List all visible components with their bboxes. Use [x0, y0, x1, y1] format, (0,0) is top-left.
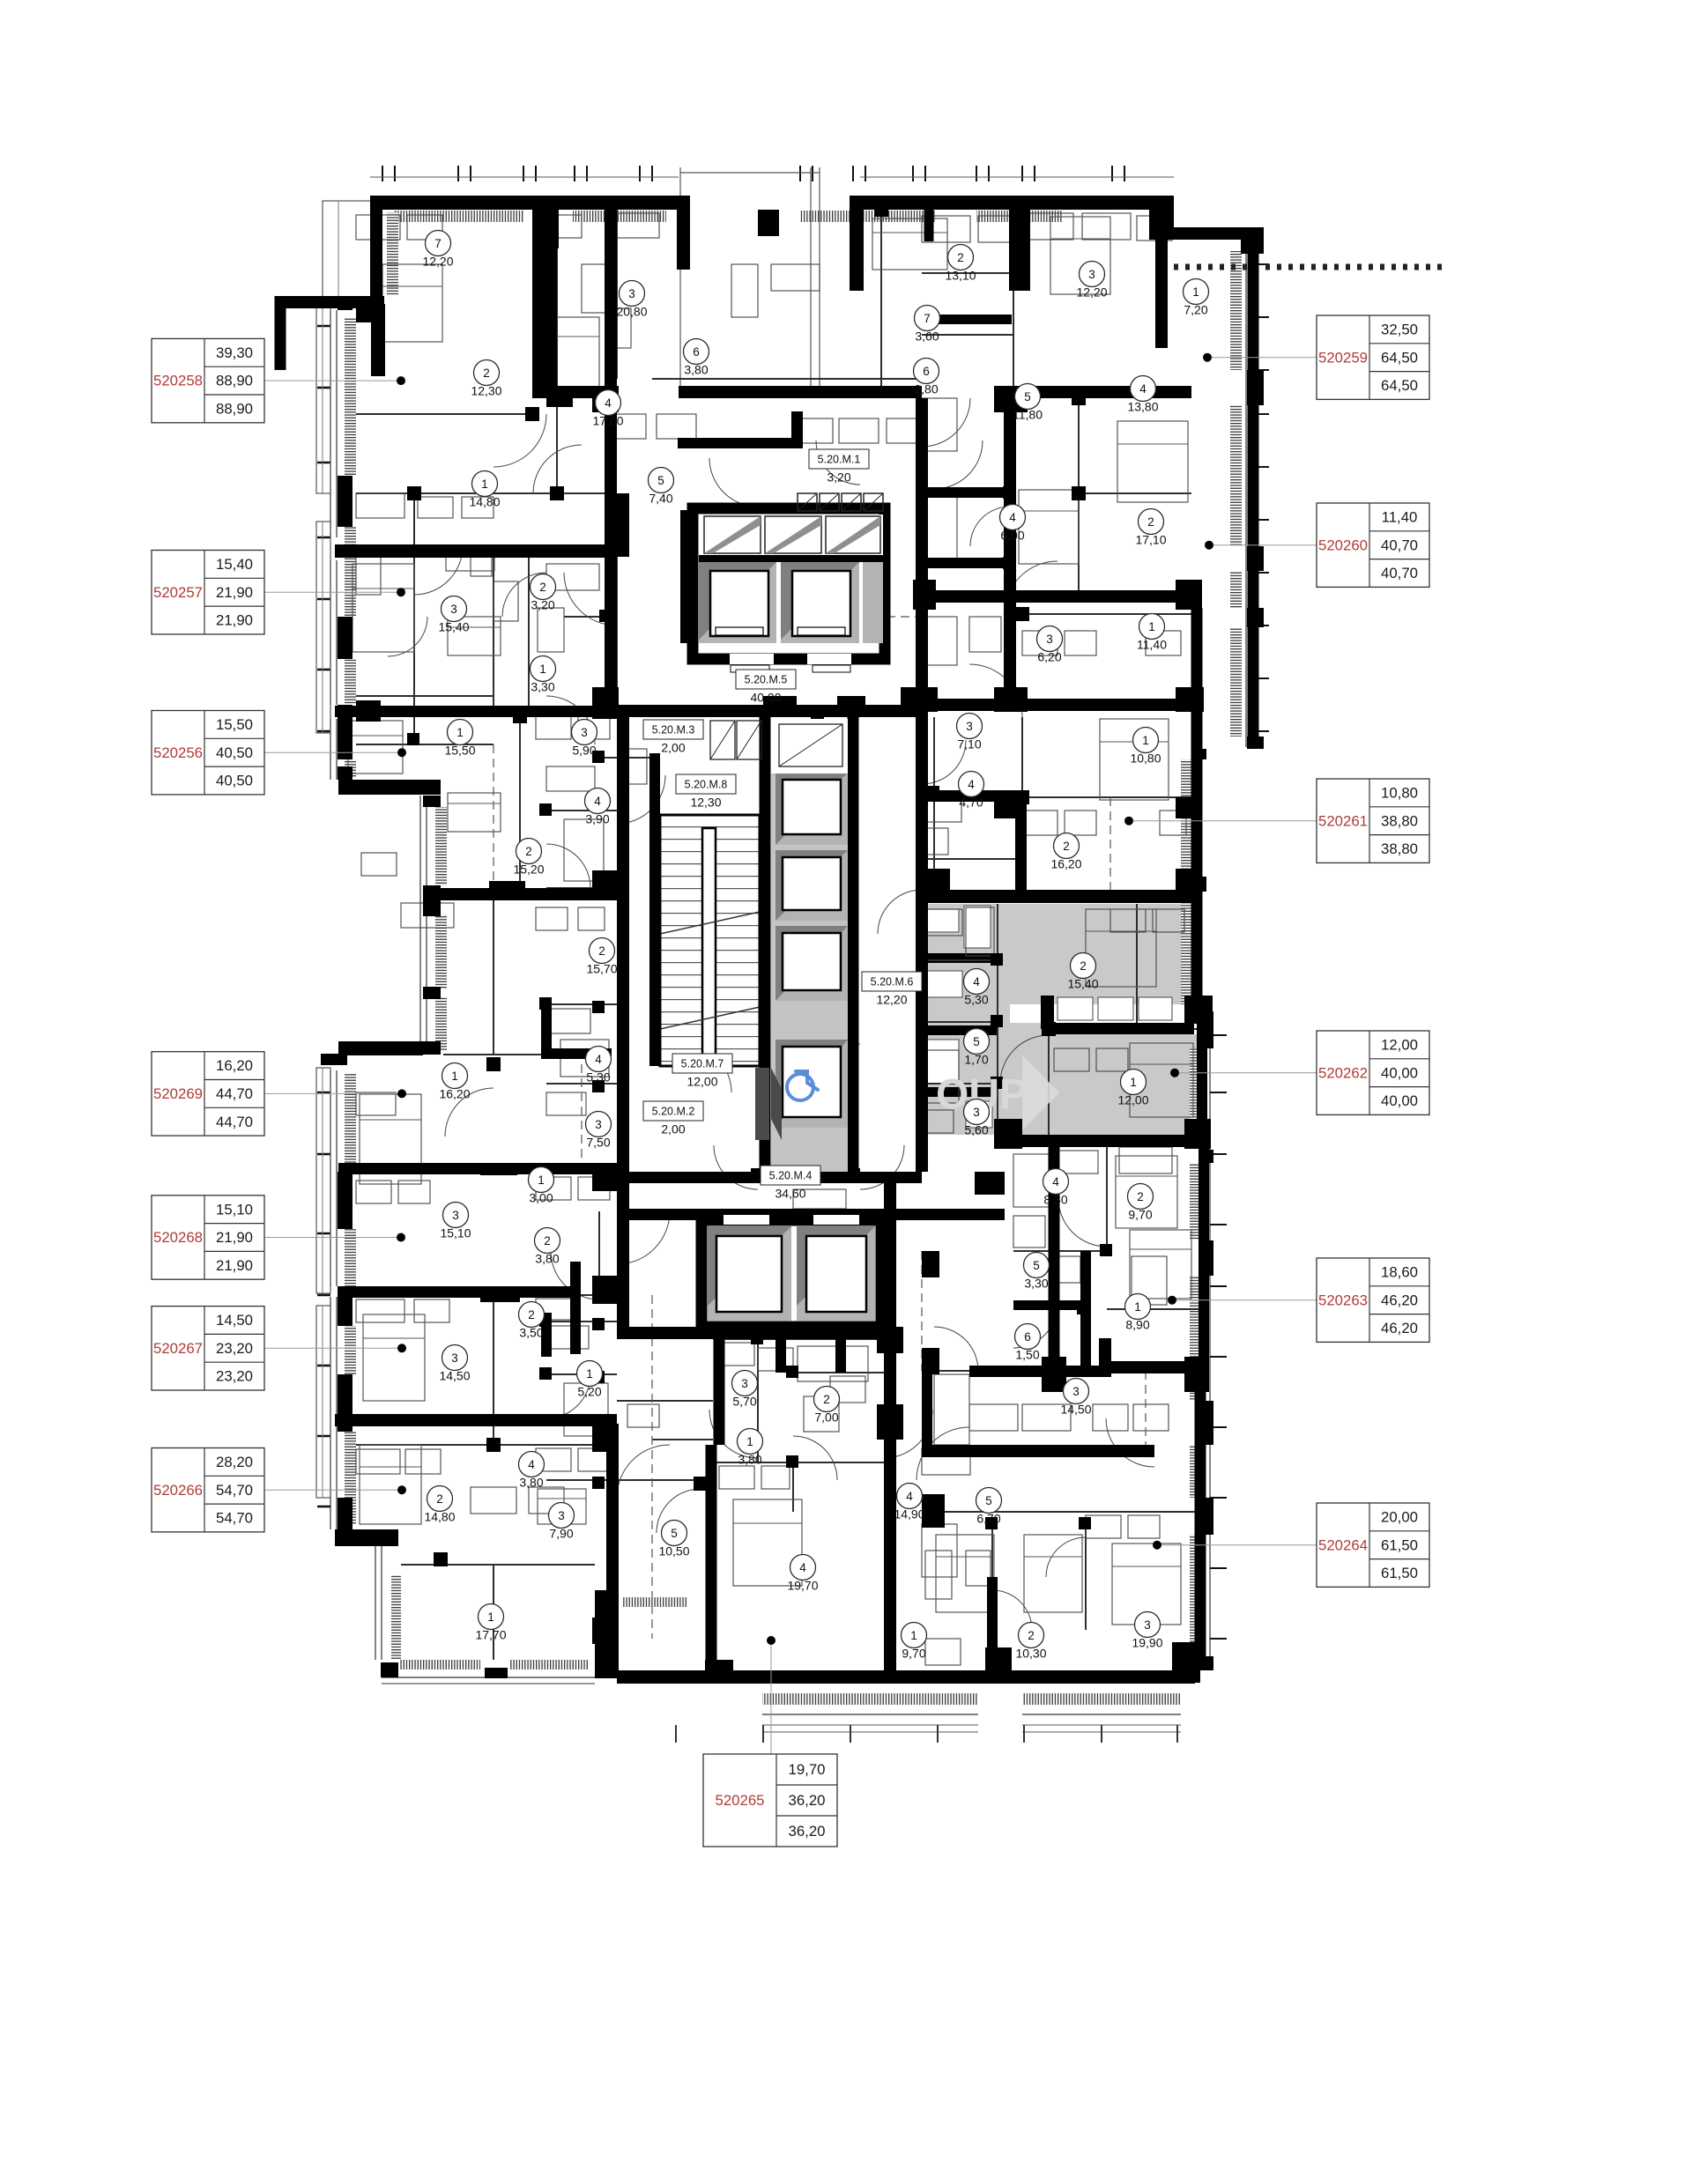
- svg-text:3: 3: [595, 1118, 602, 1131]
- svg-text:5.20.M.6: 5.20.M.6: [871, 976, 914, 988]
- svg-text:3: 3: [741, 1377, 748, 1390]
- svg-text:5.20.M.1: 5.20.M.1: [818, 454, 861, 466]
- svg-text:21,90: 21,90: [216, 1229, 253, 1246]
- svg-text:3,20: 3,20: [827, 470, 850, 485]
- svg-text:5: 5: [1024, 390, 1031, 403]
- svg-text:6,70: 6,70: [976, 1512, 1000, 1526]
- svg-text:38,80: 38,80: [1381, 840, 1418, 857]
- svg-text:7,00: 7,00: [814, 1410, 838, 1425]
- svg-text:1: 1: [456, 726, 464, 739]
- svg-text:11,40: 11,40: [1382, 509, 1418, 526]
- svg-text:3,30: 3,30: [531, 680, 554, 694]
- svg-text:7: 7: [434, 237, 442, 250]
- svg-text:7,10: 7,10: [957, 737, 981, 751]
- svg-text:3,80: 3,80: [519, 1476, 543, 1490]
- svg-text:5.20.M.8: 5.20.M.8: [685, 779, 728, 791]
- svg-text:3,20: 3,20: [531, 598, 554, 612]
- svg-text:14,50: 14,50: [439, 1369, 470, 1383]
- svg-text:8,90: 8,90: [1125, 1318, 1149, 1332]
- svg-text:4: 4: [968, 778, 975, 791]
- svg-text:13,10: 13,10: [945, 269, 976, 283]
- svg-text:3: 3: [1072, 1385, 1080, 1398]
- svg-text:5,30: 5,30: [964, 993, 988, 1007]
- svg-text:520267: 520267: [153, 1340, 203, 1357]
- svg-text:4: 4: [1009, 511, 1016, 524]
- svg-text:36,20: 36,20: [789, 1792, 826, 1809]
- svg-text:3,30: 3,30: [1024, 1277, 1048, 1291]
- svg-text:2,00: 2,00: [661, 1122, 685, 1136]
- svg-text:4: 4: [1052, 1175, 1059, 1188]
- svg-text:520261: 520261: [1318, 812, 1368, 829]
- svg-text:12,20: 12,20: [422, 255, 453, 269]
- svg-text:28,20: 28,20: [216, 1454, 253, 1470]
- svg-text:520257: 520257: [153, 584, 203, 601]
- svg-text:5.20.M.5: 5.20.M.5: [745, 674, 788, 686]
- svg-text:4: 4: [528, 1458, 535, 1471]
- svg-text:15,20: 15,20: [513, 862, 544, 877]
- svg-text:3,60: 3,60: [915, 329, 939, 344]
- svg-text:7,40: 7,40: [649, 492, 672, 506]
- svg-text:520269: 520269: [153, 1085, 203, 1102]
- svg-text:3: 3: [450, 603, 457, 616]
- svg-text:2,80: 2,80: [914, 382, 938, 396]
- svg-text:46,20: 46,20: [1381, 1292, 1418, 1308]
- svg-text:3,90: 3,90: [585, 812, 609, 826]
- svg-text:61,50: 61,50: [1381, 1565, 1418, 1581]
- svg-text:5: 5: [1033, 1259, 1040, 1272]
- svg-text:14,80: 14,80: [469, 495, 500, 509]
- svg-text:5,30: 5,30: [586, 1070, 610, 1085]
- svg-text:54,70: 54,70: [216, 1482, 253, 1499]
- svg-text:12,30: 12,30: [471, 384, 501, 398]
- svg-text:6: 6: [693, 345, 700, 359]
- svg-text:19,70: 19,70: [787, 1579, 818, 1593]
- svg-text:2: 2: [957, 251, 964, 264]
- svg-text:5: 5: [657, 474, 664, 487]
- svg-text:1: 1: [539, 663, 546, 676]
- svg-text:14,50: 14,50: [1060, 1403, 1091, 1417]
- svg-text:40,00: 40,00: [1381, 1092, 1418, 1109]
- svg-text:3,80: 3,80: [684, 363, 708, 377]
- svg-text:88,90: 88,90: [216, 373, 253, 389]
- svg-text:34,60: 34,60: [775, 1187, 805, 1201]
- svg-text:2: 2: [823, 1393, 830, 1406]
- svg-text:16,20: 16,20: [1050, 857, 1081, 871]
- svg-text:19,90: 19,90: [1132, 1636, 1162, 1650]
- svg-text:16,20: 16,20: [439, 1087, 470, 1101]
- svg-text:32,50: 32,50: [1381, 322, 1418, 338]
- svg-text:2: 2: [1080, 959, 1087, 973]
- svg-text:3: 3: [452, 1209, 459, 1222]
- svg-text:9,70: 9,70: [1128, 1208, 1152, 1222]
- svg-text:5,60: 5,60: [964, 1123, 988, 1137]
- svg-text:4: 4: [799, 1561, 806, 1574]
- svg-text:36,20: 36,20: [789, 1823, 826, 1840]
- svg-text:21,90: 21,90: [216, 612, 253, 629]
- svg-text:2: 2: [528, 1308, 535, 1322]
- svg-text:5,70: 5,70: [732, 1395, 756, 1409]
- svg-text:16,20: 16,20: [216, 1057, 253, 1074]
- svg-text:4: 4: [1139, 382, 1147, 396]
- svg-text:2: 2: [544, 1234, 551, 1247]
- svg-text:15,40: 15,40: [1067, 977, 1098, 991]
- svg-text:15,40: 15,40: [216, 556, 253, 573]
- svg-text:3: 3: [558, 1509, 565, 1522]
- svg-text:3,80: 3,80: [535, 1252, 559, 1266]
- svg-text:44,70: 44,70: [216, 1085, 253, 1102]
- svg-text:15,50: 15,50: [444, 744, 475, 758]
- svg-text:5.20.M.7: 5.20.M.7: [681, 1058, 724, 1070]
- svg-text:15,40: 15,40: [438, 620, 469, 634]
- svg-text:21,90: 21,90: [216, 584, 253, 601]
- svg-text:10,50: 10,50: [658, 1544, 689, 1558]
- svg-text:3: 3: [973, 1106, 980, 1119]
- svg-text:15,10: 15,10: [216, 1201, 253, 1218]
- svg-text:12,00: 12,00: [1117, 1093, 1148, 1107]
- svg-text:2: 2: [539, 581, 546, 594]
- svg-text:3,80: 3,80: [738, 1453, 761, 1467]
- svg-text:46,20: 46,20: [1381, 1320, 1418, 1336]
- svg-text:14,90: 14,90: [894, 1507, 924, 1521]
- svg-text:2: 2: [1028, 1629, 1035, 1642]
- svg-text:3,00: 3,00: [529, 1191, 553, 1205]
- svg-text:21,90: 21,90: [216, 1257, 253, 1274]
- svg-text:520259: 520259: [1318, 349, 1368, 366]
- svg-text:8,30: 8,30: [1043, 1193, 1067, 1207]
- svg-text:3: 3: [966, 720, 973, 733]
- svg-text:6: 6: [1024, 1330, 1031, 1344]
- svg-text:520260: 520260: [1318, 537, 1368, 553]
- svg-text:2: 2: [1063, 840, 1070, 853]
- svg-text:1: 1: [451, 1070, 458, 1083]
- svg-text:1: 1: [1134, 1300, 1141, 1314]
- svg-text:520263: 520263: [1318, 1292, 1368, 1308]
- svg-text:2: 2: [1137, 1190, 1144, 1203]
- svg-text:1: 1: [487, 1610, 494, 1624]
- svg-text:1: 1: [1192, 285, 1199, 299]
- svg-text:5.20.M.2: 5.20.M.2: [652, 1106, 695, 1118]
- svg-text:2,00: 2,00: [661, 741, 685, 755]
- svg-text:3: 3: [628, 287, 635, 300]
- svg-text:40,50: 40,50: [216, 773, 253, 789]
- svg-text:10,80: 10,80: [1130, 751, 1161, 766]
- svg-text:15,10: 15,10: [440, 1226, 471, 1240]
- svg-text:1: 1: [538, 1173, 545, 1187]
- svg-text:64,50: 64,50: [1381, 377, 1418, 394]
- svg-text:12,00: 12,00: [1381, 1037, 1418, 1054]
- svg-text:520265: 520265: [716, 1792, 765, 1809]
- svg-text:4: 4: [973, 975, 980, 988]
- svg-text:4: 4: [605, 396, 612, 410]
- svg-text:23,20: 23,20: [216, 1368, 253, 1385]
- svg-text:3: 3: [581, 726, 588, 739]
- svg-text:40,70: 40,70: [1381, 537, 1418, 553]
- svg-text:61,50: 61,50: [1381, 1536, 1418, 1553]
- svg-text:3: 3: [451, 1351, 458, 1365]
- svg-text:2: 2: [1147, 515, 1154, 529]
- svg-text:5.20.M.3: 5.20.M.3: [652, 724, 695, 737]
- svg-text:14,50: 14,50: [216, 1312, 253, 1329]
- svg-text:1: 1: [586, 1367, 593, 1381]
- svg-text:1: 1: [481, 478, 488, 491]
- svg-text:4,70: 4,70: [959, 796, 983, 810]
- svg-text:11,40: 11,40: [1137, 638, 1167, 652]
- svg-text:12,20: 12,20: [1076, 285, 1107, 300]
- svg-text:1,70: 1,70: [964, 1053, 988, 1067]
- svg-text:17,10: 17,10: [1135, 533, 1166, 547]
- svg-text:14,80: 14,80: [424, 1510, 455, 1524]
- svg-text:5: 5: [985, 1494, 992, 1507]
- svg-text:1: 1: [746, 1435, 753, 1448]
- svg-text:6,00: 6,00: [1000, 529, 1024, 543]
- svg-text:15,50: 15,50: [216, 716, 253, 733]
- svg-text:9,70: 9,70: [902, 1647, 925, 1661]
- svg-text:6: 6: [923, 365, 930, 378]
- svg-text:64,50: 64,50: [1381, 349, 1418, 366]
- svg-text:4: 4: [595, 1053, 602, 1066]
- svg-text:3: 3: [1046, 633, 1053, 646]
- svg-text:19,70: 19,70: [789, 1761, 826, 1778]
- svg-text:88,90: 88,90: [216, 401, 253, 418]
- svg-text:13,80: 13,80: [1127, 400, 1158, 414]
- svg-text:5.20.M.4: 5.20.M.4: [769, 1170, 813, 1182]
- svg-text:520264: 520264: [1318, 1536, 1368, 1553]
- svg-text:2: 2: [598, 944, 605, 958]
- svg-text:2: 2: [436, 1492, 443, 1506]
- svg-text:20,80: 20,80: [616, 305, 647, 319]
- svg-text:520258: 520258: [153, 373, 203, 389]
- svg-text:4: 4: [906, 1490, 913, 1503]
- svg-text:40,70: 40,70: [1381, 565, 1418, 581]
- svg-text:3,50: 3,50: [519, 1326, 543, 1340]
- svg-text:20,00: 20,00: [1381, 1509, 1418, 1526]
- svg-text:1: 1: [1130, 1076, 1137, 1089]
- svg-text:5: 5: [973, 1035, 980, 1048]
- svg-text:18,60: 18,60: [1381, 1264, 1418, 1281]
- svg-text:7: 7: [924, 312, 931, 325]
- svg-text:1,50: 1,50: [1015, 1348, 1039, 1362]
- svg-text:6,20: 6,20: [1037, 650, 1061, 664]
- svg-text:12,00: 12,00: [686, 1075, 717, 1089]
- svg-text:520266: 520266: [153, 1482, 203, 1499]
- svg-text:1: 1: [910, 1629, 917, 1642]
- svg-text:12,30: 12,30: [690, 796, 721, 810]
- svg-text:15,70: 15,70: [586, 962, 617, 976]
- svg-text:17,70: 17,70: [475, 1628, 506, 1642]
- svg-text:7,90: 7,90: [549, 1527, 573, 1541]
- svg-text:5,90: 5,90: [572, 744, 596, 758]
- svg-text:40,00: 40,00: [750, 691, 781, 705]
- svg-text:54,70: 54,70: [216, 1510, 253, 1527]
- svg-text:2: 2: [525, 845, 532, 858]
- svg-text:4: 4: [594, 795, 601, 808]
- svg-text:1: 1: [1142, 734, 1149, 747]
- svg-text:520256: 520256: [153, 744, 203, 761]
- svg-text:10,80: 10,80: [1381, 785, 1418, 802]
- svg-text:7,50: 7,50: [586, 1136, 610, 1150]
- svg-text:11,80: 11,80: [1013, 408, 1043, 422]
- svg-text:5,20: 5,20: [577, 1385, 601, 1399]
- svg-text:38,80: 38,80: [1381, 812, 1418, 829]
- svg-text:3: 3: [1144, 1618, 1151, 1632]
- svg-text:39,30: 39,30: [216, 344, 253, 361]
- svg-text:5: 5: [671, 1527, 678, 1540]
- svg-text:40,50: 40,50: [216, 744, 253, 761]
- svg-text:23,20: 23,20: [216, 1340, 253, 1357]
- svg-text:40,00: 40,00: [1381, 1064, 1418, 1081]
- svg-text:10,30: 10,30: [1015, 1647, 1046, 1661]
- svg-text:12,20: 12,20: [876, 993, 907, 1007]
- svg-text:3: 3: [1088, 268, 1095, 281]
- svg-text:7,20: 7,20: [1184, 303, 1207, 317]
- svg-text:520262: 520262: [1318, 1064, 1368, 1081]
- svg-text:44,70: 44,70: [216, 1114, 253, 1130]
- svg-text:17,60: 17,60: [592, 414, 623, 428]
- svg-text:520268: 520268: [153, 1229, 203, 1246]
- svg-text:2: 2: [483, 366, 490, 380]
- svg-text:1: 1: [1148, 620, 1155, 633]
